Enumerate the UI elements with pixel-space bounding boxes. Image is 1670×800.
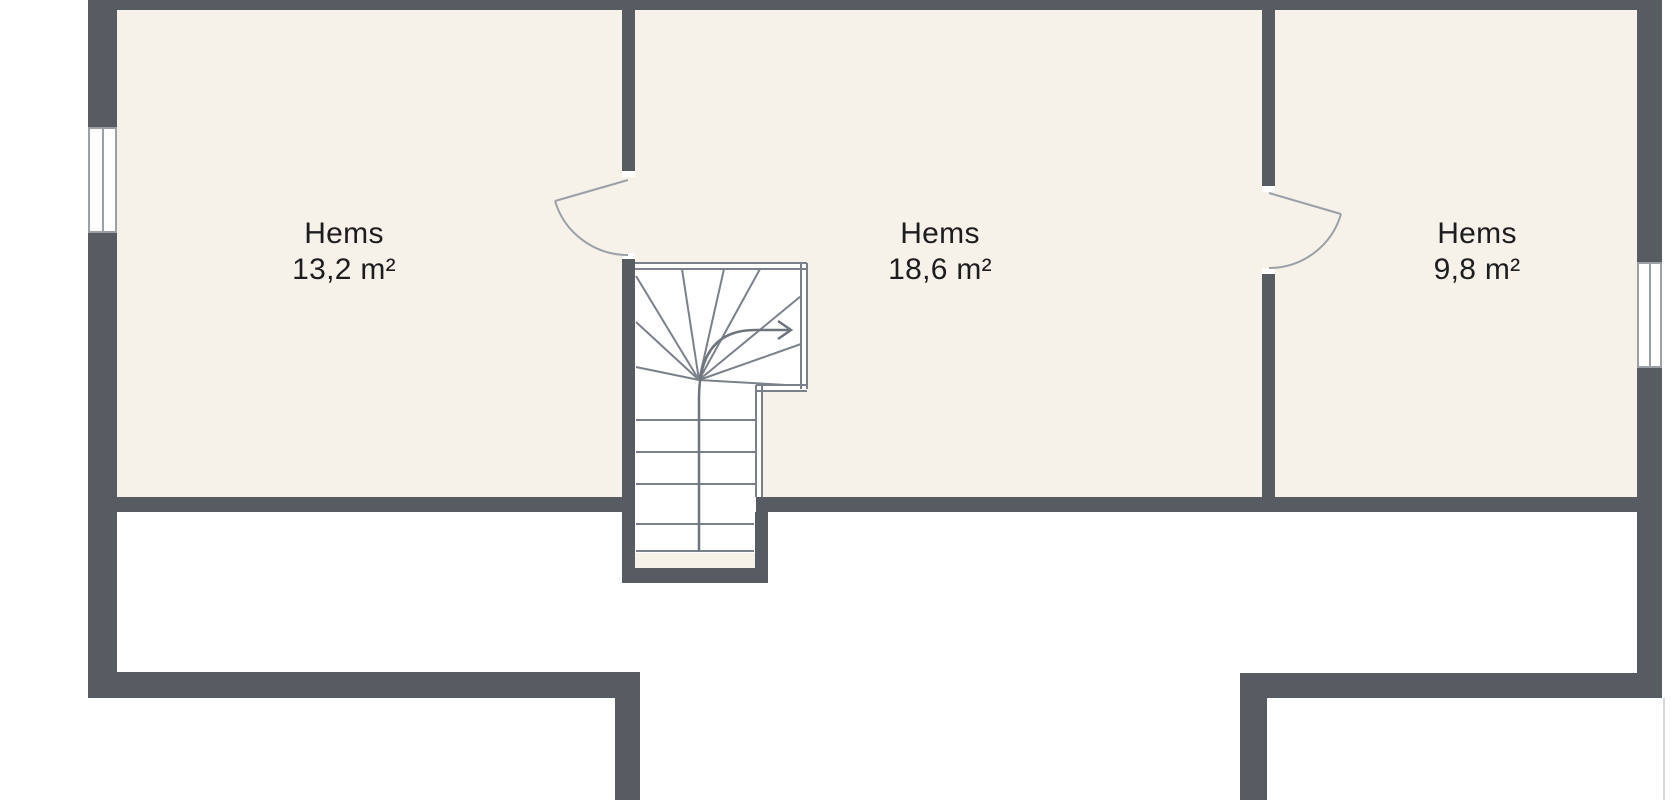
staircase xyxy=(635,263,807,551)
room-area: 9,8 m² xyxy=(1347,252,1607,288)
door-leaf xyxy=(555,180,628,201)
stair-winder-treads xyxy=(636,269,801,385)
room-label-left: Hems 13,2 m² xyxy=(214,216,474,288)
room-name: Hems xyxy=(810,216,1070,252)
stair-outline xyxy=(635,263,807,497)
room-name: Hems xyxy=(214,216,474,252)
door-right-room xyxy=(1269,193,1341,268)
room-label-right: Hems 9,8 m² xyxy=(1347,216,1607,288)
door-swing-arc xyxy=(1269,214,1341,268)
door-swing-arc xyxy=(555,201,628,255)
room-area: 18,6 m² xyxy=(810,252,1070,288)
door-left-room xyxy=(555,180,628,255)
stair-straight-treads xyxy=(636,420,756,551)
room-area: 13,2 m² xyxy=(214,252,474,288)
room-label-middle: Hems 18,6 m² xyxy=(810,216,1070,288)
door-leaf xyxy=(1269,193,1341,214)
room-name: Hems xyxy=(1347,216,1607,252)
plan-linework xyxy=(0,0,1670,800)
floor-plan-canvas: Hems 13,2 m² Hems 18,6 m² Hems 9,8 m² xyxy=(0,0,1670,800)
